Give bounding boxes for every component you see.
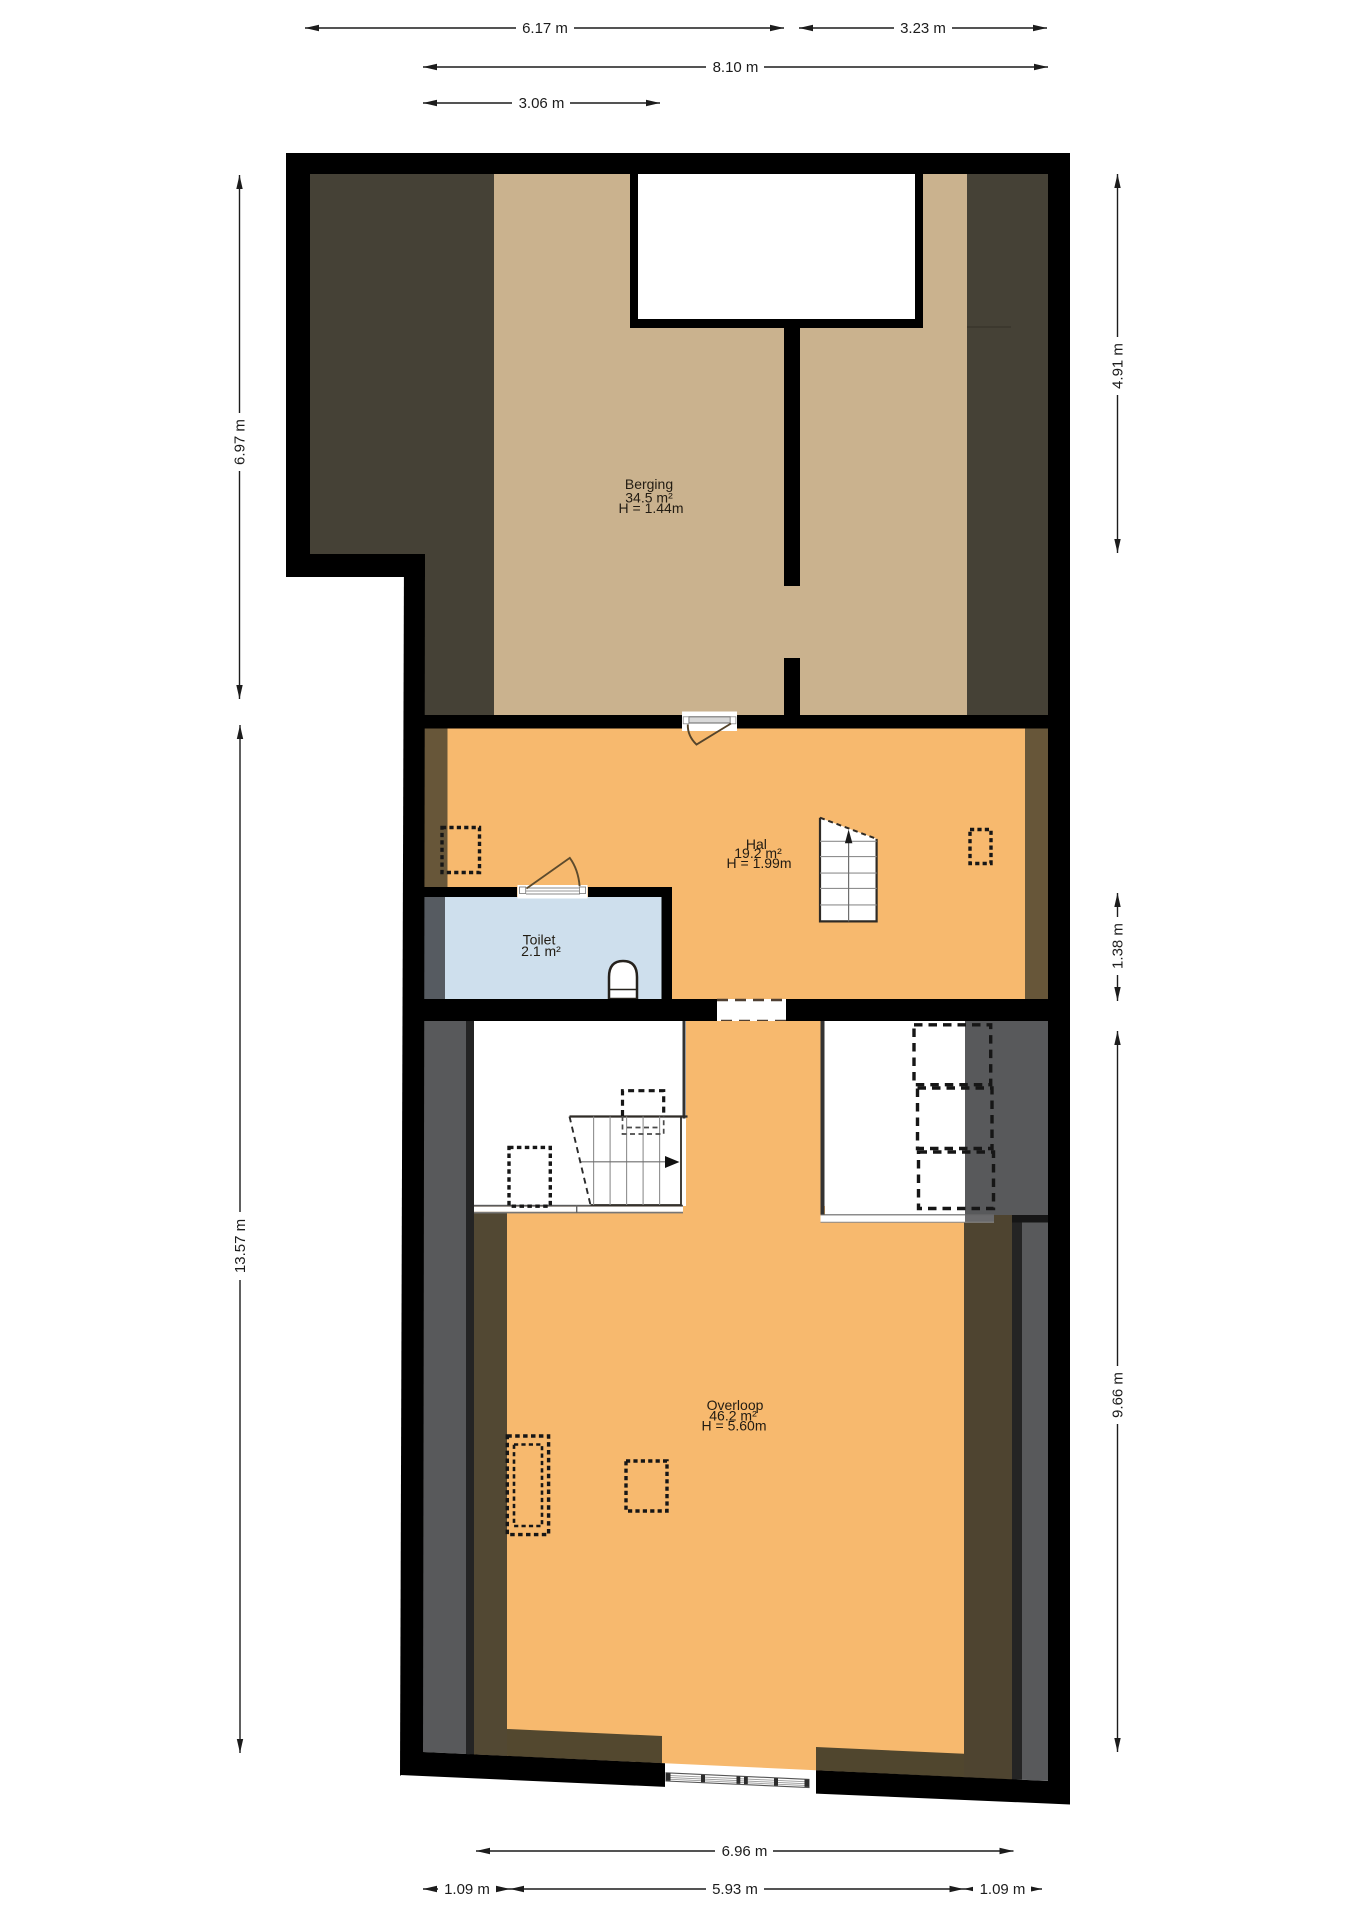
svg-text:3.23 m: 3.23 m <box>900 20 946 37</box>
svg-text:8.10 m: 8.10 m <box>713 59 759 76</box>
svg-text:6.17 m: 6.17 m <box>522 20 568 37</box>
svg-text:1.09 m: 1.09 m <box>980 1881 1026 1898</box>
svg-text:H = 1.44m: H = 1.44m <box>619 500 684 516</box>
svg-text:H = 5.60m: H = 5.60m <box>702 1418 767 1434</box>
svg-text:2.1 m²: 2.1 m² <box>521 943 561 959</box>
svg-text:6.96 m: 6.96 m <box>722 1843 768 1860</box>
svg-text:9.66 m: 9.66 m <box>1110 1372 1127 1418</box>
svg-text:1.09 m: 1.09 m <box>444 1881 490 1898</box>
svg-text:5.93 m: 5.93 m <box>712 1881 758 1898</box>
svg-text:1.38 m: 1.38 m <box>1110 923 1127 969</box>
svg-text:H = 1.99m: H = 1.99m <box>727 855 792 871</box>
svg-text:13.57 m: 13.57 m <box>232 1219 249 1273</box>
svg-text:3.06 m: 3.06 m <box>519 95 565 112</box>
svg-text:6.97 m: 6.97 m <box>232 419 249 465</box>
svg-text:4.91 m: 4.91 m <box>1110 343 1127 389</box>
